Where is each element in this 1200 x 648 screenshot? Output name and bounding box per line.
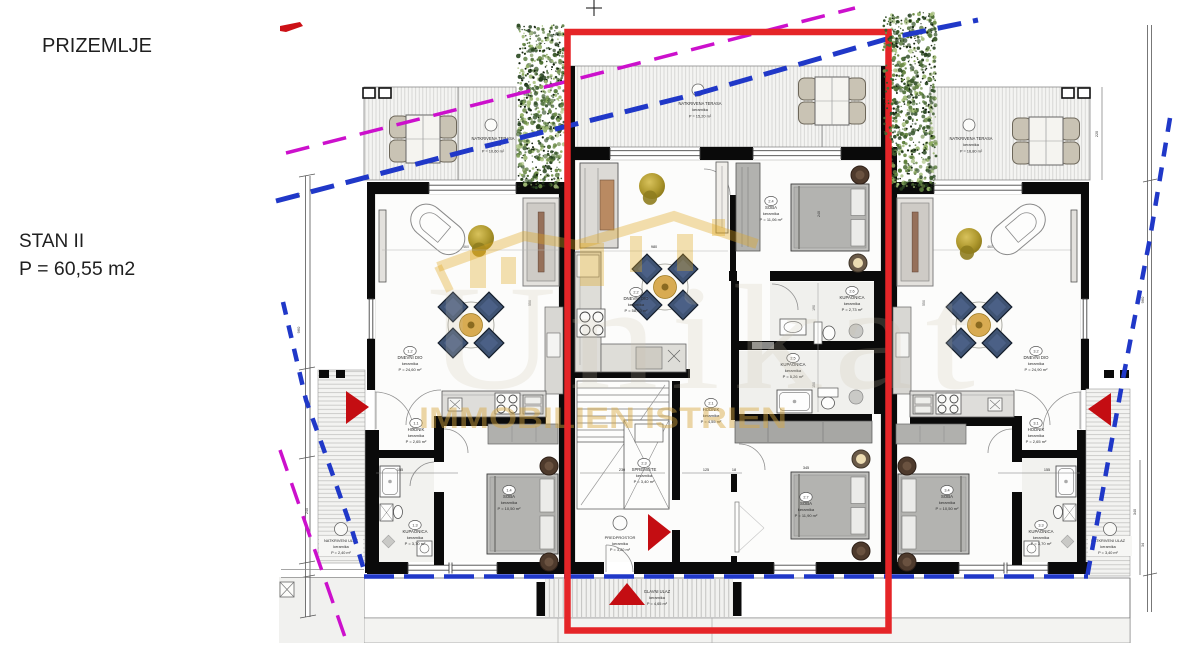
svg-text:keramika: keramika	[939, 500, 956, 505]
svg-text:keramika: keramika	[963, 142, 980, 147]
svg-text:keramika: keramika	[402, 361, 419, 366]
svg-text:125: 125	[703, 468, 709, 472]
svg-text:460: 460	[463, 245, 469, 249]
svg-text:DNEVNI DIO: DNEVNI DIO	[397, 355, 423, 360]
svg-text:KUPAONICA: KUPAONICA	[403, 529, 428, 534]
svg-text:155: 155	[1044, 468, 1050, 472]
svg-text:P = 24,90 m²: P = 24,90 m²	[1025, 367, 1049, 372]
svg-text:2.4: 2.4	[768, 200, 773, 204]
svg-text:keramika: keramika	[1028, 433, 1045, 438]
svg-text:Unikat: Unikat	[427, 255, 987, 421]
svg-text:P = 11,90 m²: P = 11,90 m²	[795, 513, 818, 518]
svg-text:DNEVNI DIO: DNEVNI DIO	[1023, 355, 1049, 360]
svg-text:keramika: keramika	[798, 507, 815, 512]
svg-text:keramika: keramika	[1100, 545, 1116, 549]
svg-text:keramika: keramika	[649, 595, 666, 600]
svg-text:P = 16,80 m²: P = 16,80 m²	[960, 149, 983, 154]
svg-text:P = 24,60 m²: P = 24,60 m²	[399, 367, 423, 372]
svg-text:240: 240	[817, 211, 821, 217]
svg-text:P = 15,20 m²: P = 15,20 m²	[689, 114, 712, 119]
svg-text:P = 3,40 m²: P = 3,40 m²	[634, 479, 655, 484]
svg-text:3.4: 3.4	[944, 489, 949, 493]
svg-text:3.2: 3.2	[1033, 350, 1038, 354]
svg-text:keramika: keramika	[1033, 535, 1050, 540]
svg-text:keramika: keramika	[407, 535, 424, 540]
svg-text:240: 240	[305, 508, 309, 514]
svg-text:P = 2,65 m²: P = 2,65 m²	[1026, 439, 1047, 444]
svg-text:1.3: 1.3	[412, 524, 417, 528]
svg-text:345: 345	[803, 466, 809, 470]
svg-text:155: 155	[397, 468, 403, 472]
svg-text:keramika: keramika	[692, 107, 709, 112]
svg-text:P = 3,40 m²: P = 3,40 m²	[1098, 551, 1118, 555]
svg-text:SOBA: SOBA	[765, 205, 777, 210]
svg-text:keramika: keramika	[1028, 361, 1045, 366]
svg-text:220: 220	[1095, 131, 1099, 137]
svg-text:P = 60,55 m2: P = 60,55 m2	[19, 258, 135, 280]
svg-text:SOBA: SOBA	[941, 494, 953, 499]
svg-text:P = 2,65 m²: P = 2,65 m²	[406, 439, 427, 444]
svg-text:NATKRIVENA TERASA: NATKRIVENA TERASA	[471, 136, 514, 141]
svg-text:3.1: 3.1	[1033, 422, 1038, 426]
svg-text:GLAVNI ULAZ: GLAVNI ULAZ	[644, 589, 671, 594]
svg-text:34: 34	[1141, 543, 1145, 547]
svg-text:HODNIK: HODNIK	[1028, 427, 1045, 432]
svg-text:P = 11,06 m²: P = 11,06 m²	[760, 217, 783, 222]
svg-text:1.4: 1.4	[506, 489, 511, 493]
svg-text:2.3: 2.3	[641, 462, 646, 466]
svg-text:NATKRIVENA TERASA: NATKRIVENA TERASA	[949, 136, 992, 141]
svg-text:P = 2,40 m²: P = 2,40 m²	[331, 551, 351, 555]
svg-text:P = 3,70 m²: P = 3,70 m²	[405, 541, 426, 546]
svg-text:IMMOBILIEN ISTRIEN: IMMOBILIEN ISTRIEN	[419, 402, 787, 435]
svg-text:SPREMIŠTE: SPREMIŠTE	[632, 467, 657, 472]
svg-text:960: 960	[296, 326, 301, 333]
svg-text:keramika: keramika	[501, 500, 518, 505]
svg-text:P = 10,50 m²: P = 10,50 m²	[498, 506, 522, 511]
svg-text:SOBA: SOBA	[800, 501, 812, 506]
svg-text:1.1: 1.1	[413, 422, 418, 426]
svg-text:980: 980	[651, 245, 657, 249]
svg-text:P = 3,20 m²: P = 3,20 m²	[610, 547, 631, 552]
svg-text:PREDPROSTOR: PREDPROSTOR	[605, 535, 636, 540]
svg-text:keramika: keramika	[636, 473, 653, 478]
svg-text:STAN II: STAN II	[19, 231, 84, 252]
svg-text:SOBA: SOBA	[503, 494, 515, 499]
svg-text:3.3: 3.3	[1038, 524, 1043, 528]
svg-text:P = 3,70 m²: P = 3,70 m²	[1031, 541, 1052, 546]
svg-text:P = 10,60 m²: P = 10,60 m²	[482, 149, 505, 154]
svg-text:PRIZEMLJE: PRIZEMLJE	[42, 35, 152, 57]
svg-text:keramika: keramika	[612, 541, 629, 546]
svg-text:keramika: keramika	[763, 211, 780, 216]
svg-text:460: 460	[987, 245, 993, 249]
svg-text:P = 4,65 m²: P = 4,65 m²	[647, 601, 668, 606]
svg-text:P = 10,50 m²: P = 10,50 m²	[936, 506, 960, 511]
svg-text:1.2: 1.2	[407, 350, 412, 354]
svg-text:NATKRIVENA TERASA: NATKRIVENA TERASA	[678, 101, 721, 106]
svg-text:340: 340	[1133, 509, 1137, 515]
svg-text:230: 230	[619, 468, 625, 472]
svg-text:18: 18	[732, 468, 736, 472]
svg-text:2.7: 2.7	[803, 496, 808, 500]
svg-text:KUPAONICA: KUPAONICA	[1029, 529, 1054, 534]
svg-text:keramika: keramika	[333, 545, 349, 549]
